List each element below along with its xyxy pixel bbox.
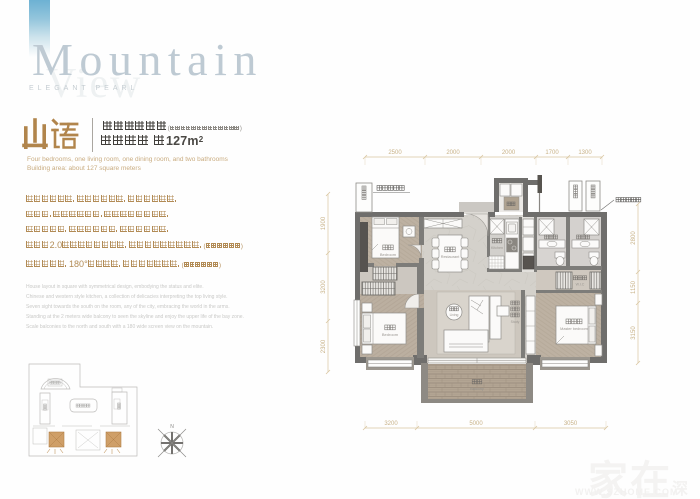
svg-text:2000: 2000 (446, 150, 460, 156)
svg-text:2500: 2500 (388, 150, 402, 156)
svg-text:Restaurant: Restaurant (441, 255, 461, 259)
svg-text:3050: 3050 (564, 421, 578, 427)
svg-text:3200: 3200 (384, 421, 398, 427)
svg-text:W.I.C: W.I.C (576, 283, 585, 287)
svg-text:Kitchen: Kitchen (491, 246, 503, 250)
svg-text:Master bedroom: Master bedroom (560, 327, 588, 331)
svg-text:1150: 1150 (631, 280, 637, 294)
svg-text:2000: 2000 (502, 150, 516, 156)
svg-text:3200: 3200 (321, 280, 327, 294)
svg-text:5000: 5000 (469, 421, 483, 427)
svg-text:2300: 2300 (321, 339, 327, 353)
svg-text:N: N (170, 424, 174, 430)
svg-text:1700: 1700 (545, 150, 559, 156)
svg-text:Balcony: Balcony (470, 387, 484, 391)
svg-text:Study: Study (511, 320, 520, 324)
svg-text:Bedroom: Bedroom (382, 332, 399, 337)
svg-text:Bedroom: Bedroom (380, 252, 397, 257)
svg-text:2800: 2800 (631, 231, 637, 245)
svg-text:Living: Living (450, 313, 459, 317)
svg-text:1900: 1900 (321, 216, 327, 230)
svg-text:3150: 3150 (631, 326, 637, 340)
svg-text:1300: 1300 (578, 150, 592, 156)
